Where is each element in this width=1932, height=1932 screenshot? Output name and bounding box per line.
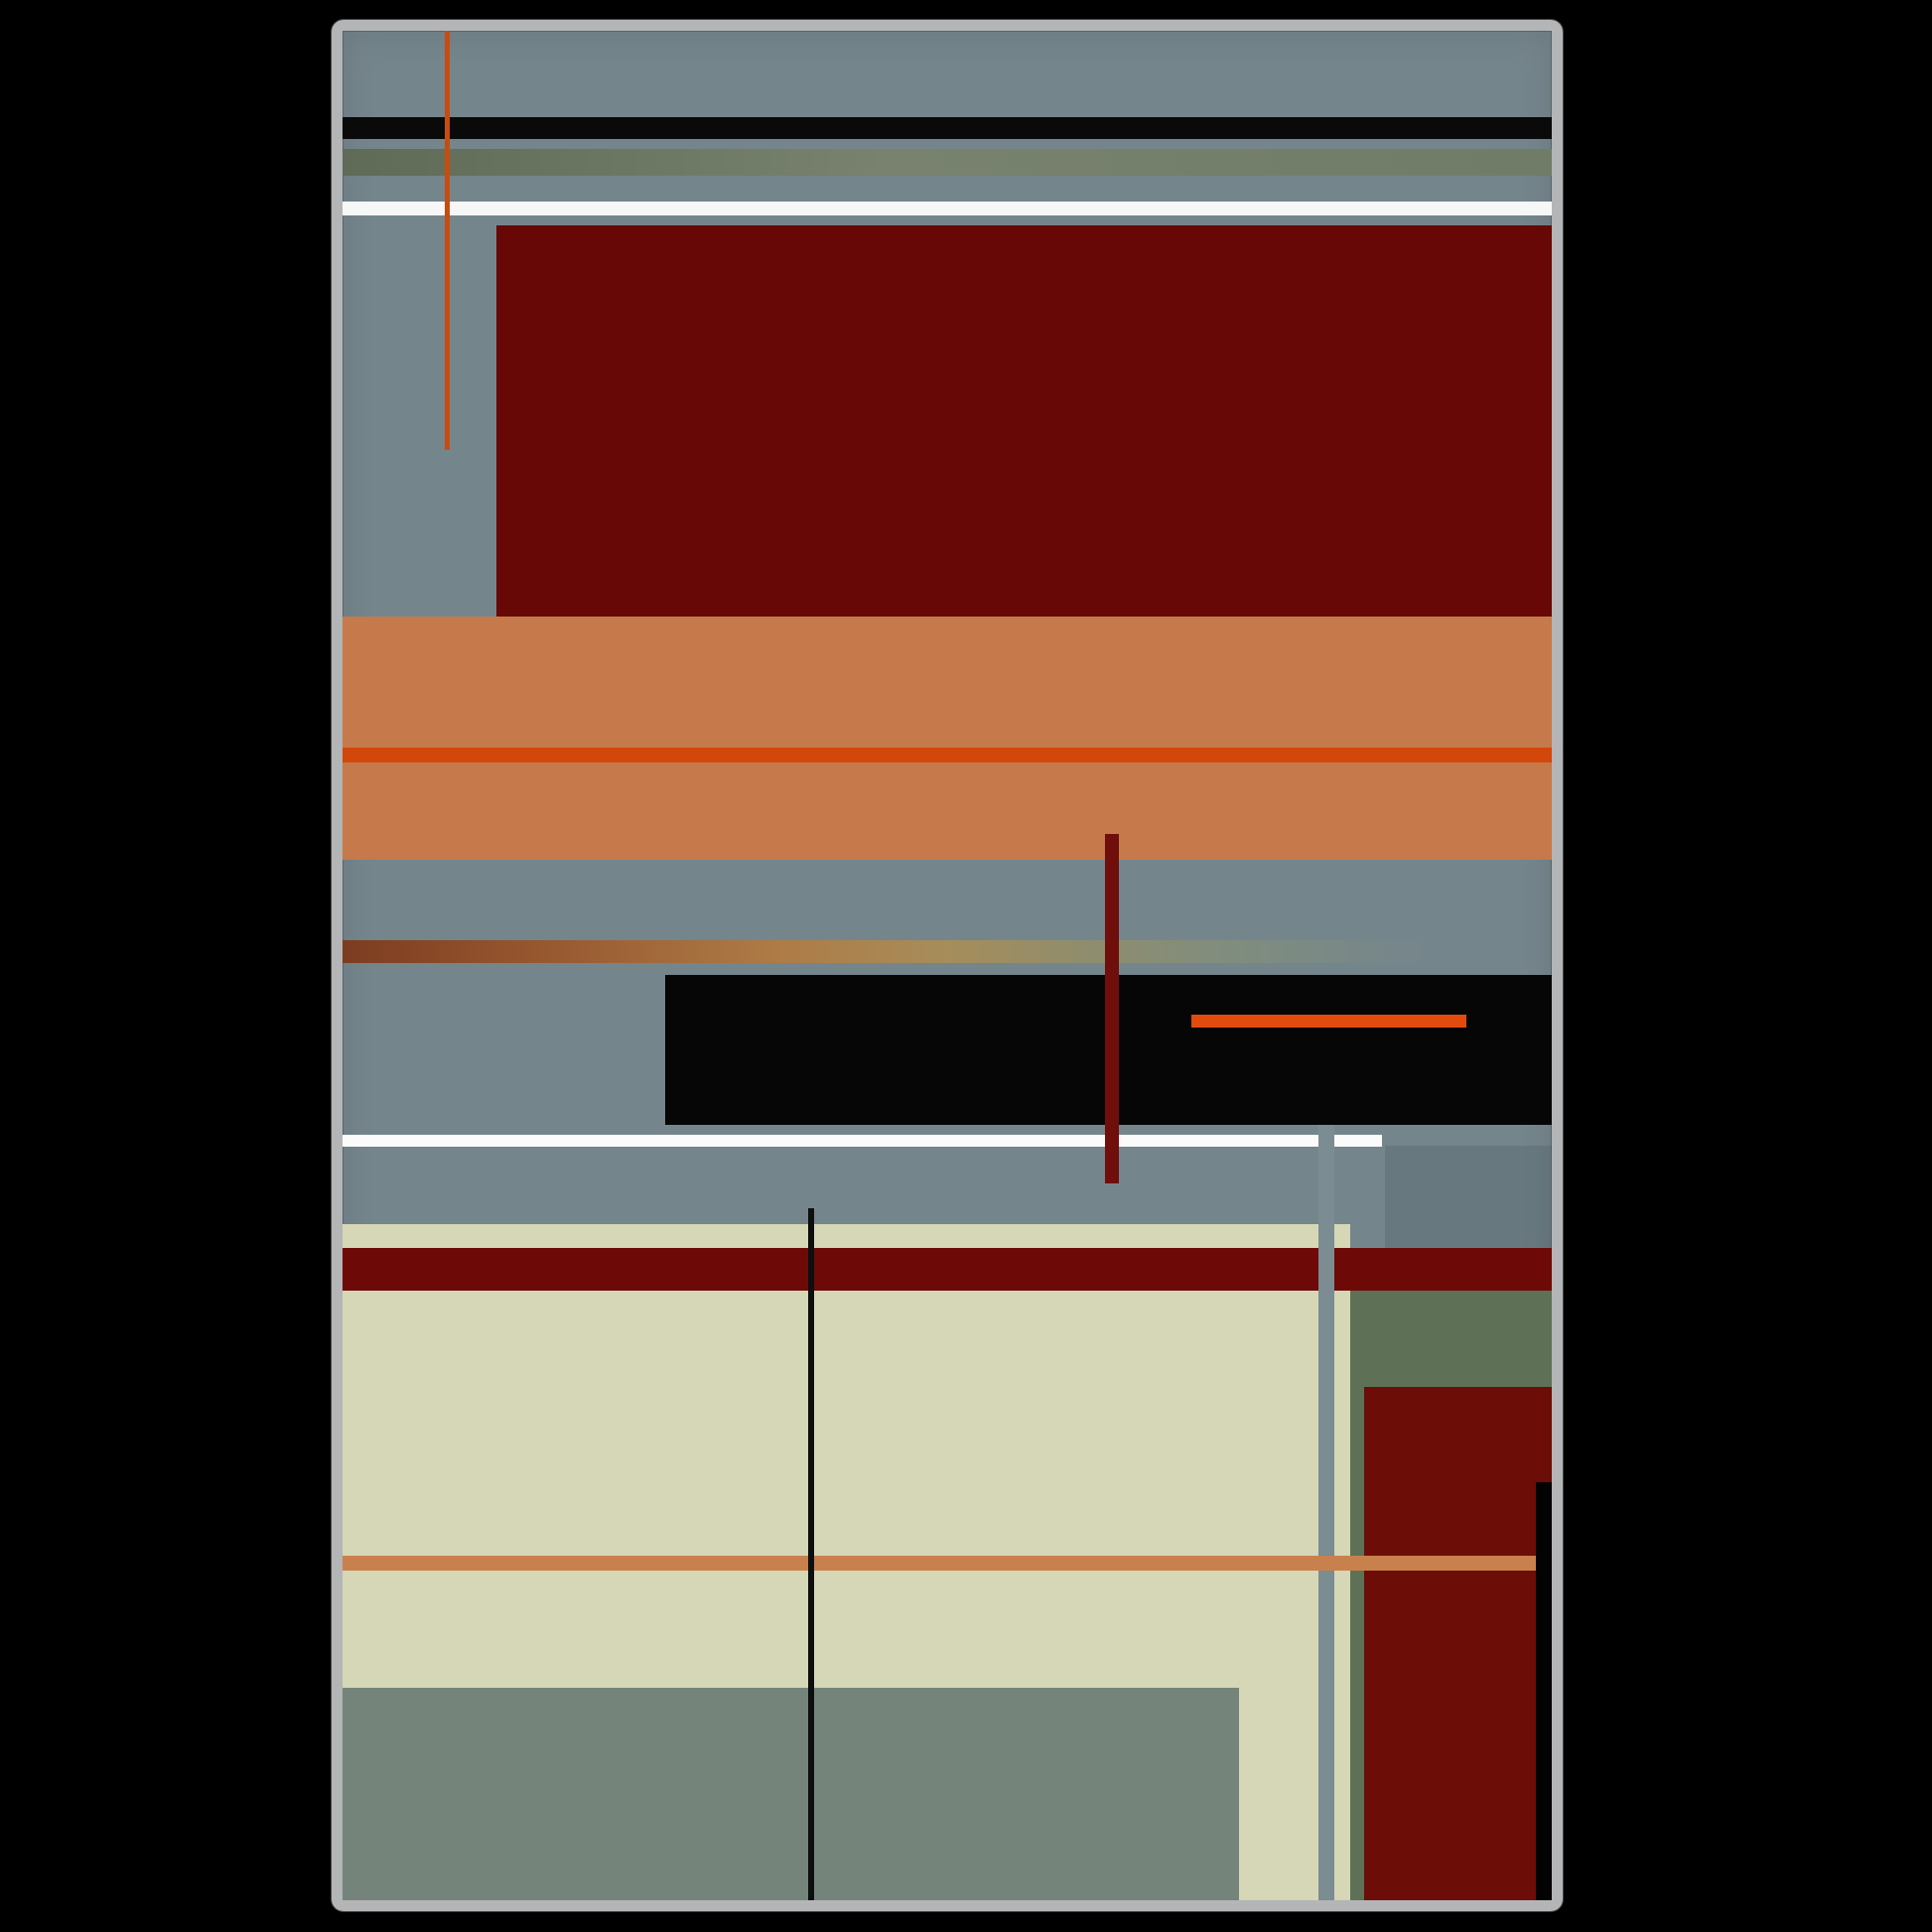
rect-maroon-large — [496, 225, 1552, 617]
band-maroon-lower — [343, 1248, 1552, 1291]
line-orange-vertical-top — [445, 31, 450, 450]
stripe-gradient-brown — [343, 940, 1552, 963]
band-orange — [343, 617, 1552, 860]
block-gray-green-bottom — [343, 1688, 1239, 1900]
artwork-inner — [343, 31, 1552, 1900]
line-black-vertical — [808, 1208, 814, 1900]
patch-shadow-gray — [1385, 1146, 1552, 1248]
stripe-tan-bottom — [343, 1556, 1536, 1571]
stripe-black-top — [343, 117, 1552, 139]
stripe-white-top — [343, 202, 1552, 215]
band-cream-upper — [343, 1224, 1318, 1248]
stripe-red-orange — [343, 748, 1552, 762]
stripe-white-lower — [343, 1135, 1382, 1147]
block-dark-red — [1364, 1387, 1552, 1900]
bar-maroon-vertical — [1105, 834, 1119, 1183]
sliver-black-right — [1536, 1482, 1552, 1900]
line-gray-vertical — [1318, 1125, 1334, 1900]
stripe-olive — [343, 149, 1552, 176]
page-background — [0, 0, 1932, 1932]
art-print-frame — [332, 20, 1563, 1911]
line-orange-in-black — [1191, 1015, 1466, 1028]
